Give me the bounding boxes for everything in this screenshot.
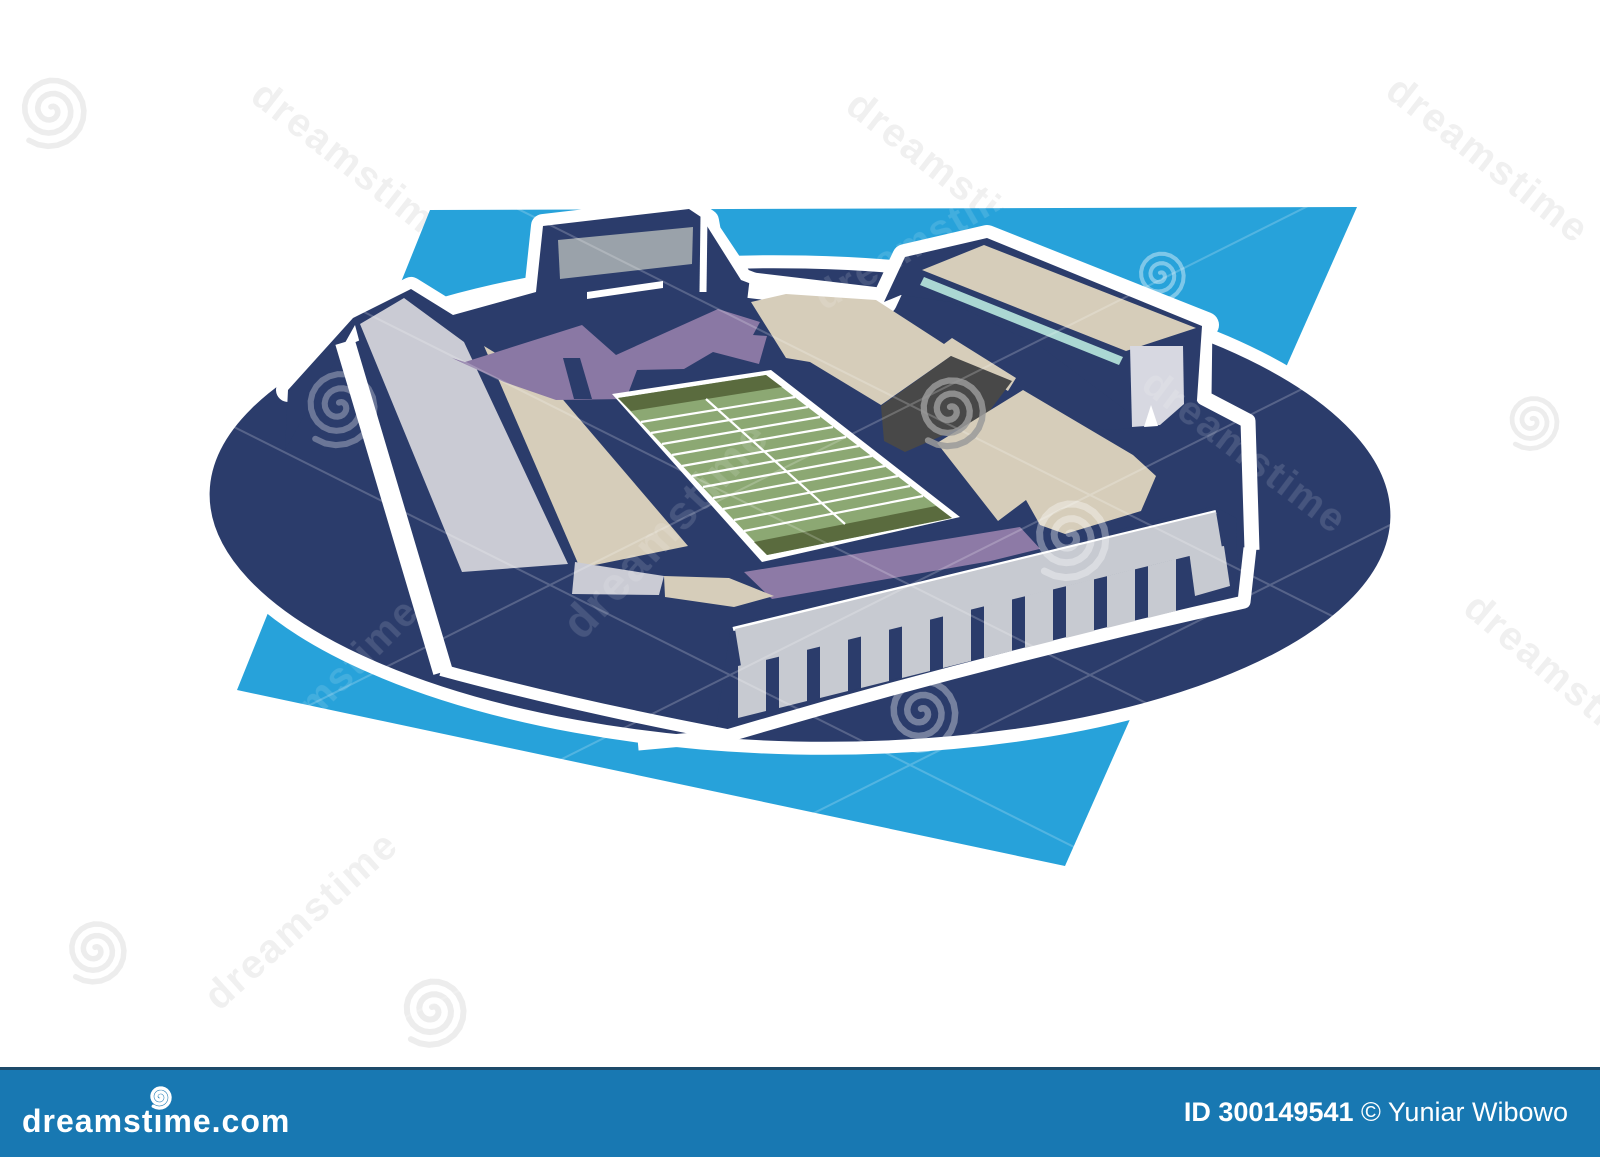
svg-text:ID 300149541 © Yuniar Wibowo: ID 300149541 © Yuniar Wibowo xyxy=(1184,1097,1568,1127)
